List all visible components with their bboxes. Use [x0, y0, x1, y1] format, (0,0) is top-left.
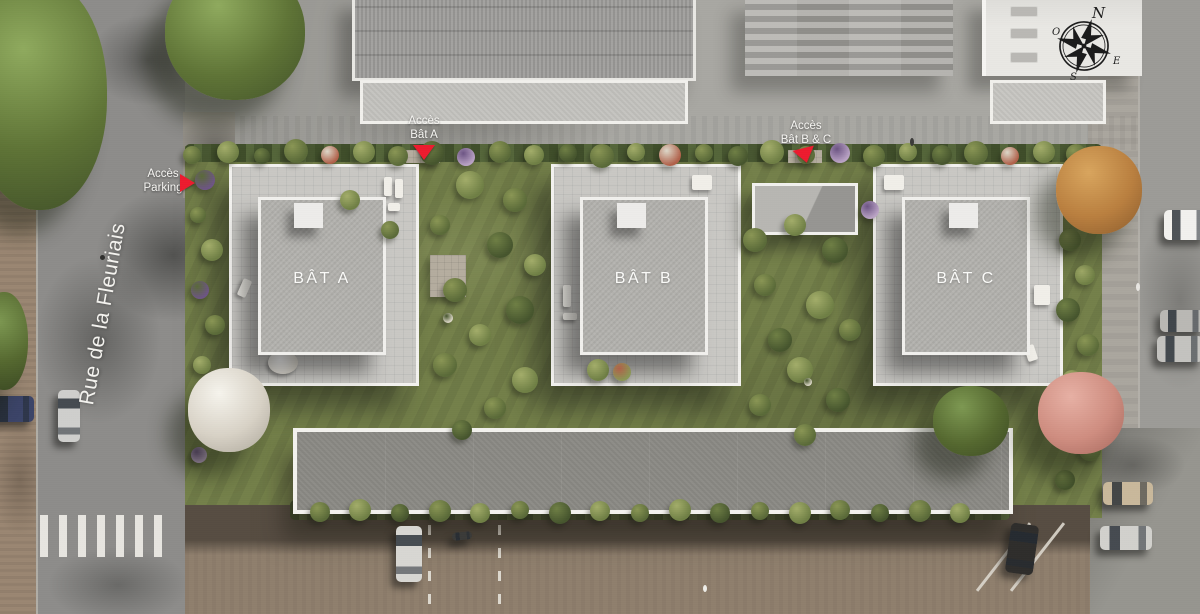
pedestrian [1136, 283, 1140, 291]
bush [861, 201, 879, 219]
bush [524, 145, 544, 165]
bush [443, 278, 467, 302]
bush [710, 503, 730, 523]
bush [310, 502, 330, 522]
lounger [563, 285, 571, 307]
bush [669, 499, 691, 521]
bush [826, 388, 850, 412]
roof-access-box [949, 203, 978, 228]
pedestrian [910, 138, 914, 146]
bush [340, 190, 360, 210]
bush [470, 503, 490, 523]
bush [254, 148, 270, 164]
bush [768, 328, 792, 352]
building-b: BÂT B [551, 164, 741, 386]
bush [743, 228, 767, 252]
bush [443, 313, 453, 323]
bush [794, 424, 816, 446]
bush [456, 171, 484, 199]
building-c-roof: BÂT C [902, 197, 1030, 355]
bush [193, 356, 211, 374]
industrial-roof-west [352, 0, 696, 81]
car [0, 396, 34, 422]
bush [804, 378, 812, 386]
bush [433, 353, 457, 377]
bush [349, 499, 371, 521]
terrace-table [1034, 285, 1050, 305]
bush [353, 141, 375, 163]
bush [830, 500, 850, 520]
roof-access-box [294, 203, 323, 228]
bush [822, 237, 848, 263]
bush [321, 146, 339, 164]
pink-tree [1038, 372, 1124, 454]
industrial-roof-east [745, 0, 953, 76]
bush [381, 221, 399, 239]
access-parking-arrow-icon [180, 174, 195, 192]
bush [391, 504, 409, 522]
bush [627, 143, 645, 161]
bush [191, 447, 207, 463]
bush [205, 315, 225, 335]
lounger [237, 278, 253, 298]
bush [784, 214, 806, 236]
bush [511, 501, 529, 519]
bush [932, 145, 952, 165]
parking-line [428, 522, 431, 604]
parking-line [498, 522, 501, 604]
bush [695, 144, 713, 162]
bush [489, 141, 511, 163]
bush [789, 502, 811, 524]
white-building-gravel [990, 80, 1106, 124]
car [1160, 310, 1200, 332]
carport-building [293, 428, 1013, 514]
terrace-table-set [884, 175, 904, 190]
terrace-table [388, 203, 400, 211]
terrace-bench [563, 313, 577, 320]
bush [183, 146, 201, 164]
bush [524, 254, 546, 276]
bush [559, 144, 577, 162]
compass-north-label: N [1091, 4, 1106, 22]
bush [1033, 141, 1055, 163]
roof-access-box [617, 203, 646, 228]
terrace-table-set [692, 175, 712, 190]
blossom-tree [188, 368, 270, 452]
bush [587, 359, 609, 381]
bush [217, 141, 239, 163]
bush [839, 319, 861, 341]
building-a: BÂT A [229, 164, 419, 386]
access-bat-a-label: Accès Bât A [389, 114, 459, 143]
bush [457, 148, 475, 166]
autumn-tree [1056, 146, 1142, 234]
compass-east-label: E [1112, 56, 1121, 67]
car [1157, 336, 1200, 362]
site-plan-aerial-view: BÂT A BÂT B BÂT C Rue de la Fleuriais Ac… [0, 0, 1200, 614]
bush [964, 141, 988, 165]
lounger [384, 177, 392, 196]
bush [863, 145, 885, 167]
car [396, 526, 422, 582]
bush [613, 363, 631, 381]
bush [909, 500, 931, 522]
car [1100, 526, 1152, 550]
compass-west-label: O [1052, 27, 1060, 38]
bush [452, 420, 472, 440]
building-c-label: BÂT C [905, 270, 1027, 288]
bush [1055, 470, 1075, 490]
bush [1056, 298, 1080, 322]
bush [728, 146, 748, 166]
bush [1077, 334, 1099, 356]
bush [430, 215, 450, 235]
bush [899, 143, 917, 161]
bush [549, 502, 571, 524]
lounger [395, 179, 403, 198]
bush [429, 500, 451, 522]
bush [484, 397, 506, 419]
bush [806, 291, 834, 319]
compass-rose-icon: N O E S [1032, 2, 1142, 86]
bush [512, 367, 538, 393]
right-access-road [1088, 428, 1200, 614]
compass-south-label: S [1070, 72, 1077, 83]
bush [590, 501, 610, 521]
bush [388, 146, 408, 166]
building-c: BÂT C [873, 164, 1063, 386]
building-b-label: BÂT B [583, 270, 705, 288]
building-b-roof: BÂT B [580, 197, 708, 355]
bush [191, 281, 209, 299]
bush [751, 502, 769, 520]
pedestrian [703, 585, 707, 592]
bush [1001, 147, 1019, 165]
tree [933, 386, 1009, 456]
bush [1059, 229, 1081, 251]
bush [503, 188, 527, 212]
bush [950, 503, 970, 523]
bush [487, 232, 513, 258]
building-a-label: BÂT A [261, 270, 383, 288]
bush [631, 504, 649, 522]
building-a-roof: BÂT A [258, 197, 386, 355]
bush [506, 296, 534, 324]
access-bat-a-arrow-icon [413, 145, 435, 160]
bush [754, 274, 776, 296]
bush [590, 144, 614, 168]
bush [749, 394, 771, 416]
bush [871, 504, 889, 522]
bush [201, 239, 223, 261]
bush [190, 207, 206, 223]
bush [659, 144, 681, 166]
access-bat-bc-label: Accès Bât B & C [756, 119, 856, 148]
car [1103, 482, 1153, 505]
car [1164, 210, 1200, 240]
bush [284, 139, 308, 163]
bush [469, 324, 491, 346]
bush [1075, 265, 1095, 285]
pedestrian-crossing [40, 515, 162, 557]
